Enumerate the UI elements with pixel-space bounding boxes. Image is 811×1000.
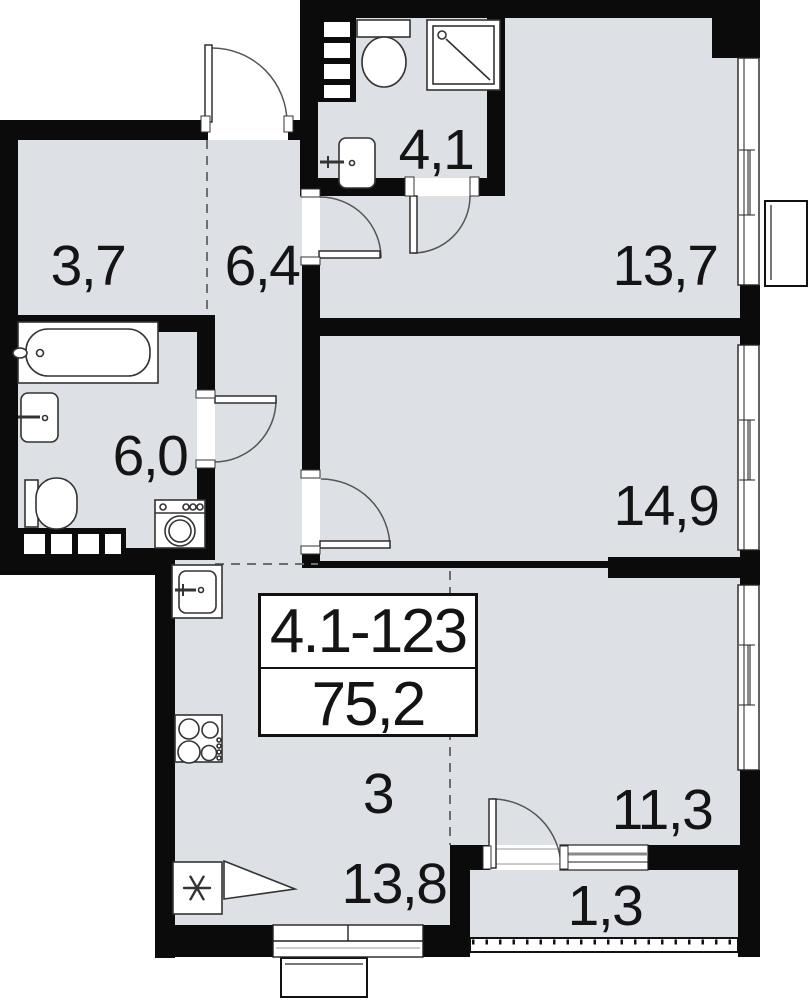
wall xyxy=(487,18,505,178)
wall xyxy=(473,178,505,196)
wall xyxy=(608,557,758,578)
wall xyxy=(300,18,318,196)
wall xyxy=(302,258,320,477)
ac-basket-right xyxy=(764,200,808,287)
wall xyxy=(0,120,208,140)
door-opening-balcony xyxy=(490,845,562,870)
door-opening xyxy=(197,398,215,460)
room-label-hallway: 6,4 xyxy=(225,233,300,299)
room-label-bedroom-bottom: 11,3 xyxy=(612,777,713,843)
floor-fill-left xyxy=(18,140,320,560)
wall xyxy=(15,315,210,332)
apartment-info-box: 4.1-123 75,2 xyxy=(258,593,478,737)
rooms-count: 3 xyxy=(363,761,393,827)
door-opening xyxy=(302,196,320,258)
room-label-bedroom-top: 13,7 xyxy=(613,233,718,299)
wall xyxy=(302,547,320,568)
room-label-kitchen-living: 13,8 xyxy=(342,851,447,917)
wall xyxy=(197,315,215,398)
window xyxy=(738,345,759,550)
wall xyxy=(648,845,740,870)
room-label-balcony: 1,3 xyxy=(568,873,643,939)
room-label-bathroom-small: 4,1 xyxy=(399,117,474,183)
floor-plan: 4.1-123 75,2 3,7 6,4 4,1 13,7 6,0 14,9 3… xyxy=(0,0,811,1000)
wall-thin-partition xyxy=(320,561,608,568)
vent-shaft xyxy=(318,18,356,102)
room-label-bedroom-middle: 14,9 xyxy=(614,473,719,539)
balcony-glazing xyxy=(470,938,738,952)
apartment-total-area: 75,2 xyxy=(261,669,475,740)
wall xyxy=(302,318,758,336)
window xyxy=(273,925,423,957)
wall xyxy=(300,0,758,18)
wall xyxy=(155,557,175,958)
window xyxy=(738,58,759,285)
wall xyxy=(740,285,760,345)
wall xyxy=(197,460,215,560)
room-label-bathroom-large: 6,0 xyxy=(113,423,188,489)
wall xyxy=(740,0,760,58)
door-opening-entrance xyxy=(208,120,288,140)
apartment-number: 4.1-123 xyxy=(261,596,475,669)
wall xyxy=(0,120,18,575)
ac-basket-bottom xyxy=(280,957,368,998)
wall xyxy=(155,925,273,957)
entrance-door xyxy=(201,45,293,132)
wall xyxy=(450,845,490,870)
vent-shaft xyxy=(18,528,126,560)
window xyxy=(738,585,759,770)
wall xyxy=(125,548,215,560)
door-opening xyxy=(302,477,320,547)
wall xyxy=(738,845,758,957)
wall xyxy=(300,178,413,196)
room-label-wardrobe: 3,7 xyxy=(51,233,126,299)
